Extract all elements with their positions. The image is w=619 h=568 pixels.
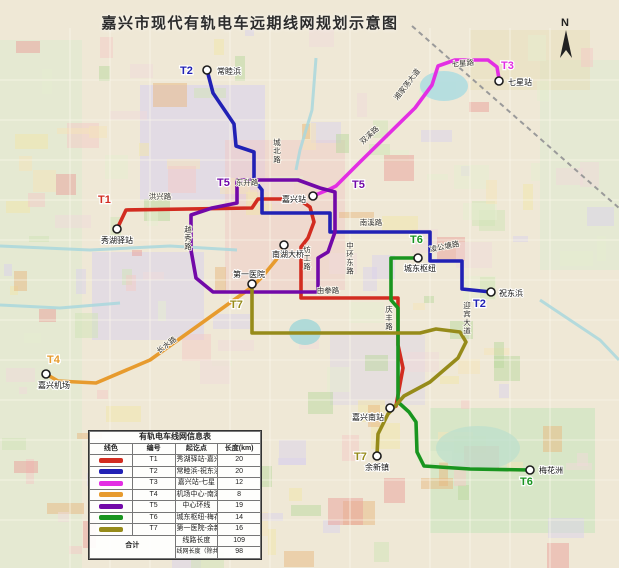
- land-block: [327, 367, 350, 392]
- road-label-9: 中环东路: [346, 240, 354, 276]
- land-block: [56, 174, 76, 195]
- legend-color-cell: [90, 478, 133, 490]
- legend-color-cell: [90, 466, 133, 478]
- legend-swatch-T1: [99, 458, 123, 463]
- legend-line-no: T3: [132, 478, 175, 490]
- legend-header-3: 长度(km): [218, 443, 261, 455]
- land-block: [158, 301, 166, 321]
- legend-swatch-T5: [99, 504, 123, 509]
- land-block: [458, 359, 480, 374]
- road-label-8: 纺工路: [303, 244, 311, 271]
- station-label-6: 城东枢纽: [404, 263, 436, 273]
- legend-total-0-label: 线路长度: [175, 535, 218, 547]
- land-block: [566, 463, 592, 470]
- land-block: [357, 93, 367, 117]
- legend-table: 有轨电车线网信息表线色编号起讫点长度(km)T1秀湖驿站-嘉兴南站20T2常睦浜…: [88, 430, 262, 560]
- line-badge-t2-2: T2: [473, 298, 486, 310]
- legend-swatch-T3: [99, 481, 123, 486]
- station-10: [373, 452, 381, 460]
- legend-length: 19: [218, 501, 261, 513]
- land-block: [537, 81, 549, 101]
- land-block: [308, 392, 333, 414]
- land-block: [16, 41, 40, 53]
- land-block: [6, 368, 35, 382]
- station-3: [309, 192, 317, 200]
- land-block: [6, 201, 30, 213]
- land-block: [4, 264, 12, 276]
- land-block: [469, 102, 489, 112]
- land-block: [513, 236, 528, 242]
- station-label-4: 南湖大桥: [272, 249, 304, 259]
- land-block: [24, 333, 41, 343]
- land-block: [99, 66, 110, 81]
- line-badge-t5-5: T5: [217, 177, 230, 189]
- legend-line-no: T4: [132, 489, 175, 501]
- station-2: [495, 77, 503, 85]
- legend-line-no: T2: [132, 466, 175, 478]
- station-8: [42, 370, 50, 378]
- land-block: [97, 390, 108, 399]
- land-block: [89, 126, 107, 138]
- land-block: [200, 360, 230, 384]
- legend-route: 秀湖驿站-嘉兴南站: [175, 455, 218, 467]
- land-block: [458, 485, 469, 500]
- land-block: [100, 37, 113, 58]
- land-block: [560, 251, 593, 266]
- legend-line-no: T7: [132, 524, 175, 536]
- land-block: [106, 406, 141, 422]
- legend-swatch-T4: [99, 492, 123, 497]
- legend-route: 城东枢纽-梅花洲: [175, 512, 218, 524]
- land-block: [556, 168, 583, 185]
- station-1: [203, 66, 211, 74]
- station-label-0: 秀湖驿站: [101, 235, 133, 245]
- line-badge-t4-4: T4: [47, 354, 61, 366]
- land-zone: [540, 60, 619, 270]
- land-block: [531, 163, 540, 181]
- station-label-2: 七星站: [508, 77, 532, 87]
- page-title: 嘉兴市现代有轨电车远期线网规划示意图: [30, 12, 470, 33]
- station-6: [414, 254, 422, 262]
- land-block: [581, 48, 593, 67]
- land-block: [55, 215, 91, 228]
- line-badge-t6-7: T6: [410, 234, 423, 246]
- land-block: [19, 387, 27, 394]
- land-block: [126, 275, 136, 291]
- land-block: [413, 303, 425, 310]
- land-block: [14, 461, 38, 473]
- line-badge-t2-1: T2: [180, 65, 193, 77]
- land-block: [214, 39, 224, 55]
- road-label-7: 南溪路: [360, 217, 383, 227]
- legend-header-1: 编号: [132, 443, 175, 455]
- land-block: [76, 269, 86, 294]
- station-label-5: 第一医院: [233, 269, 265, 279]
- land-block: [291, 505, 321, 516]
- legend-swatch-T2: [99, 469, 123, 474]
- legend-color-cell: [90, 512, 133, 524]
- station-7: [487, 288, 495, 296]
- line-badge-t3-3: T3: [501, 60, 514, 72]
- legend-line-no: T1: [132, 455, 175, 467]
- land-block: [132, 250, 142, 256]
- legend-length: 20: [218, 455, 261, 467]
- land-block: [168, 166, 196, 193]
- land-block: [543, 426, 562, 452]
- legend-total-label: 合计: [90, 535, 176, 558]
- legend-route: 常睦浜-祝东浜: [175, 466, 218, 478]
- road-label-2: 越秀路: [184, 224, 192, 251]
- land-block: [57, 128, 90, 134]
- station-label-1: 常睦浜: [217, 66, 241, 76]
- land-block: [440, 376, 459, 384]
- land-block: [213, 314, 250, 329]
- legend-length: 16: [218, 524, 261, 536]
- legend-route: 嘉兴站-七星: [175, 478, 218, 490]
- legend-total-1-label: 线网长度（除共线段长度）: [175, 547, 218, 559]
- line-badge-t5-6: T5: [352, 179, 365, 191]
- legend-line-no: T6: [132, 512, 175, 524]
- legend-total-0-value: 109: [218, 535, 261, 547]
- land-block: [365, 355, 388, 371]
- legend-line-no: T5: [132, 501, 175, 513]
- legend-route: 第一医院-余新镇: [175, 524, 218, 536]
- line-badge-t7-10: T7: [354, 451, 367, 463]
- land-block: [110, 111, 147, 120]
- line-badge-t1-0: T1: [98, 194, 111, 206]
- station-label-7: 祝东浜: [499, 288, 523, 298]
- land-block: [406, 352, 439, 372]
- station-label-11: 梅花洲: [539, 465, 563, 475]
- legend-length: 8: [218, 489, 261, 501]
- land-block: [328, 498, 363, 525]
- legend-color-cell: [90, 455, 133, 467]
- land-block: [69, 546, 82, 554]
- station-label-8: 嘉兴机场: [38, 380, 70, 390]
- lake-south: [436, 426, 520, 470]
- station-11: [526, 466, 534, 474]
- land-block: [268, 529, 276, 555]
- land-block: [105, 155, 128, 179]
- station-0: [113, 225, 121, 233]
- legend-swatch-T6: [99, 515, 123, 520]
- land-block: [336, 134, 349, 153]
- land-block: [143, 272, 164, 280]
- land-block: [153, 83, 187, 107]
- land-block: [454, 165, 489, 189]
- legend-length: 12: [218, 478, 261, 490]
- land-zone: [225, 140, 345, 290]
- legend-header-2: 起讫点: [175, 443, 218, 455]
- road-label-11: 迎宾大道: [463, 300, 471, 336]
- road-label-1: 东升路: [236, 177, 259, 187]
- line-badge-t7-9: T7: [230, 299, 243, 311]
- land-block: [528, 35, 546, 61]
- land-block: [523, 184, 533, 210]
- land-block: [499, 384, 509, 398]
- station-label-3: 嘉兴站: [282, 194, 306, 204]
- land-block: [424, 296, 434, 303]
- legend-swatch-T7: [99, 527, 123, 532]
- road-label-3: 城北路: [273, 138, 281, 164]
- land-block: [587, 207, 614, 226]
- legend-route: 中心环线: [175, 501, 218, 513]
- land-block: [139, 143, 149, 156]
- legend-color-cell: [90, 489, 133, 501]
- compass-label: N: [561, 17, 569, 29]
- land-block: [218, 340, 254, 351]
- land-block: [384, 478, 405, 503]
- land-block: [29, 236, 49, 242]
- lake-xiangjiadang: [420, 71, 468, 101]
- legend-total-1-value: 98: [218, 547, 261, 559]
- land-block: [463, 203, 497, 220]
- land-block: [461, 400, 470, 409]
- land-block: [14, 271, 27, 291]
- land-zone: [92, 252, 204, 340]
- legend-color-cell: [90, 524, 133, 536]
- land-block: [15, 134, 48, 149]
- legend-length: 14: [218, 512, 261, 524]
- map-page: 洪兴路东升路越秀路城北路双溪路湘家荡大道七星路南溪路纺工路中环东路凌公塘路迎宾大…: [0, 0, 619, 568]
- legend-header-0: 线色: [90, 443, 133, 455]
- station-label-10: 余新镇: [365, 462, 389, 472]
- line-badge-t6-8: T6: [520, 476, 533, 488]
- legend-title: 有轨电车线网信息表: [90, 432, 261, 444]
- land-block: [289, 488, 302, 501]
- legend-color-cell: [90, 501, 133, 513]
- legend-length: 20: [218, 466, 261, 478]
- road-label-0: 洪兴路: [149, 191, 172, 201]
- land-block: [75, 313, 98, 338]
- land-block: [421, 130, 452, 142]
- land-block: [374, 542, 389, 562]
- land-block: [182, 334, 211, 361]
- land-block: [363, 267, 377, 291]
- land-block: [278, 458, 306, 465]
- road-label-12: 由拳路: [317, 285, 340, 295]
- land-block: [19, 156, 32, 171]
- land-block: [194, 88, 226, 98]
- station-5: [248, 280, 256, 288]
- land-block: [384, 155, 414, 181]
- land-block: [33, 170, 56, 192]
- station-4: [280, 241, 288, 249]
- station-9: [386, 404, 394, 412]
- road-label-13: 庆丰路: [385, 304, 393, 331]
- land-block: [284, 551, 314, 567]
- legend-route: 机场中心-南湖大桥: [175, 489, 218, 501]
- land-block: [548, 518, 584, 538]
- station-label-9: 嘉兴南站: [352, 412, 384, 422]
- land-block: [42, 69, 52, 94]
